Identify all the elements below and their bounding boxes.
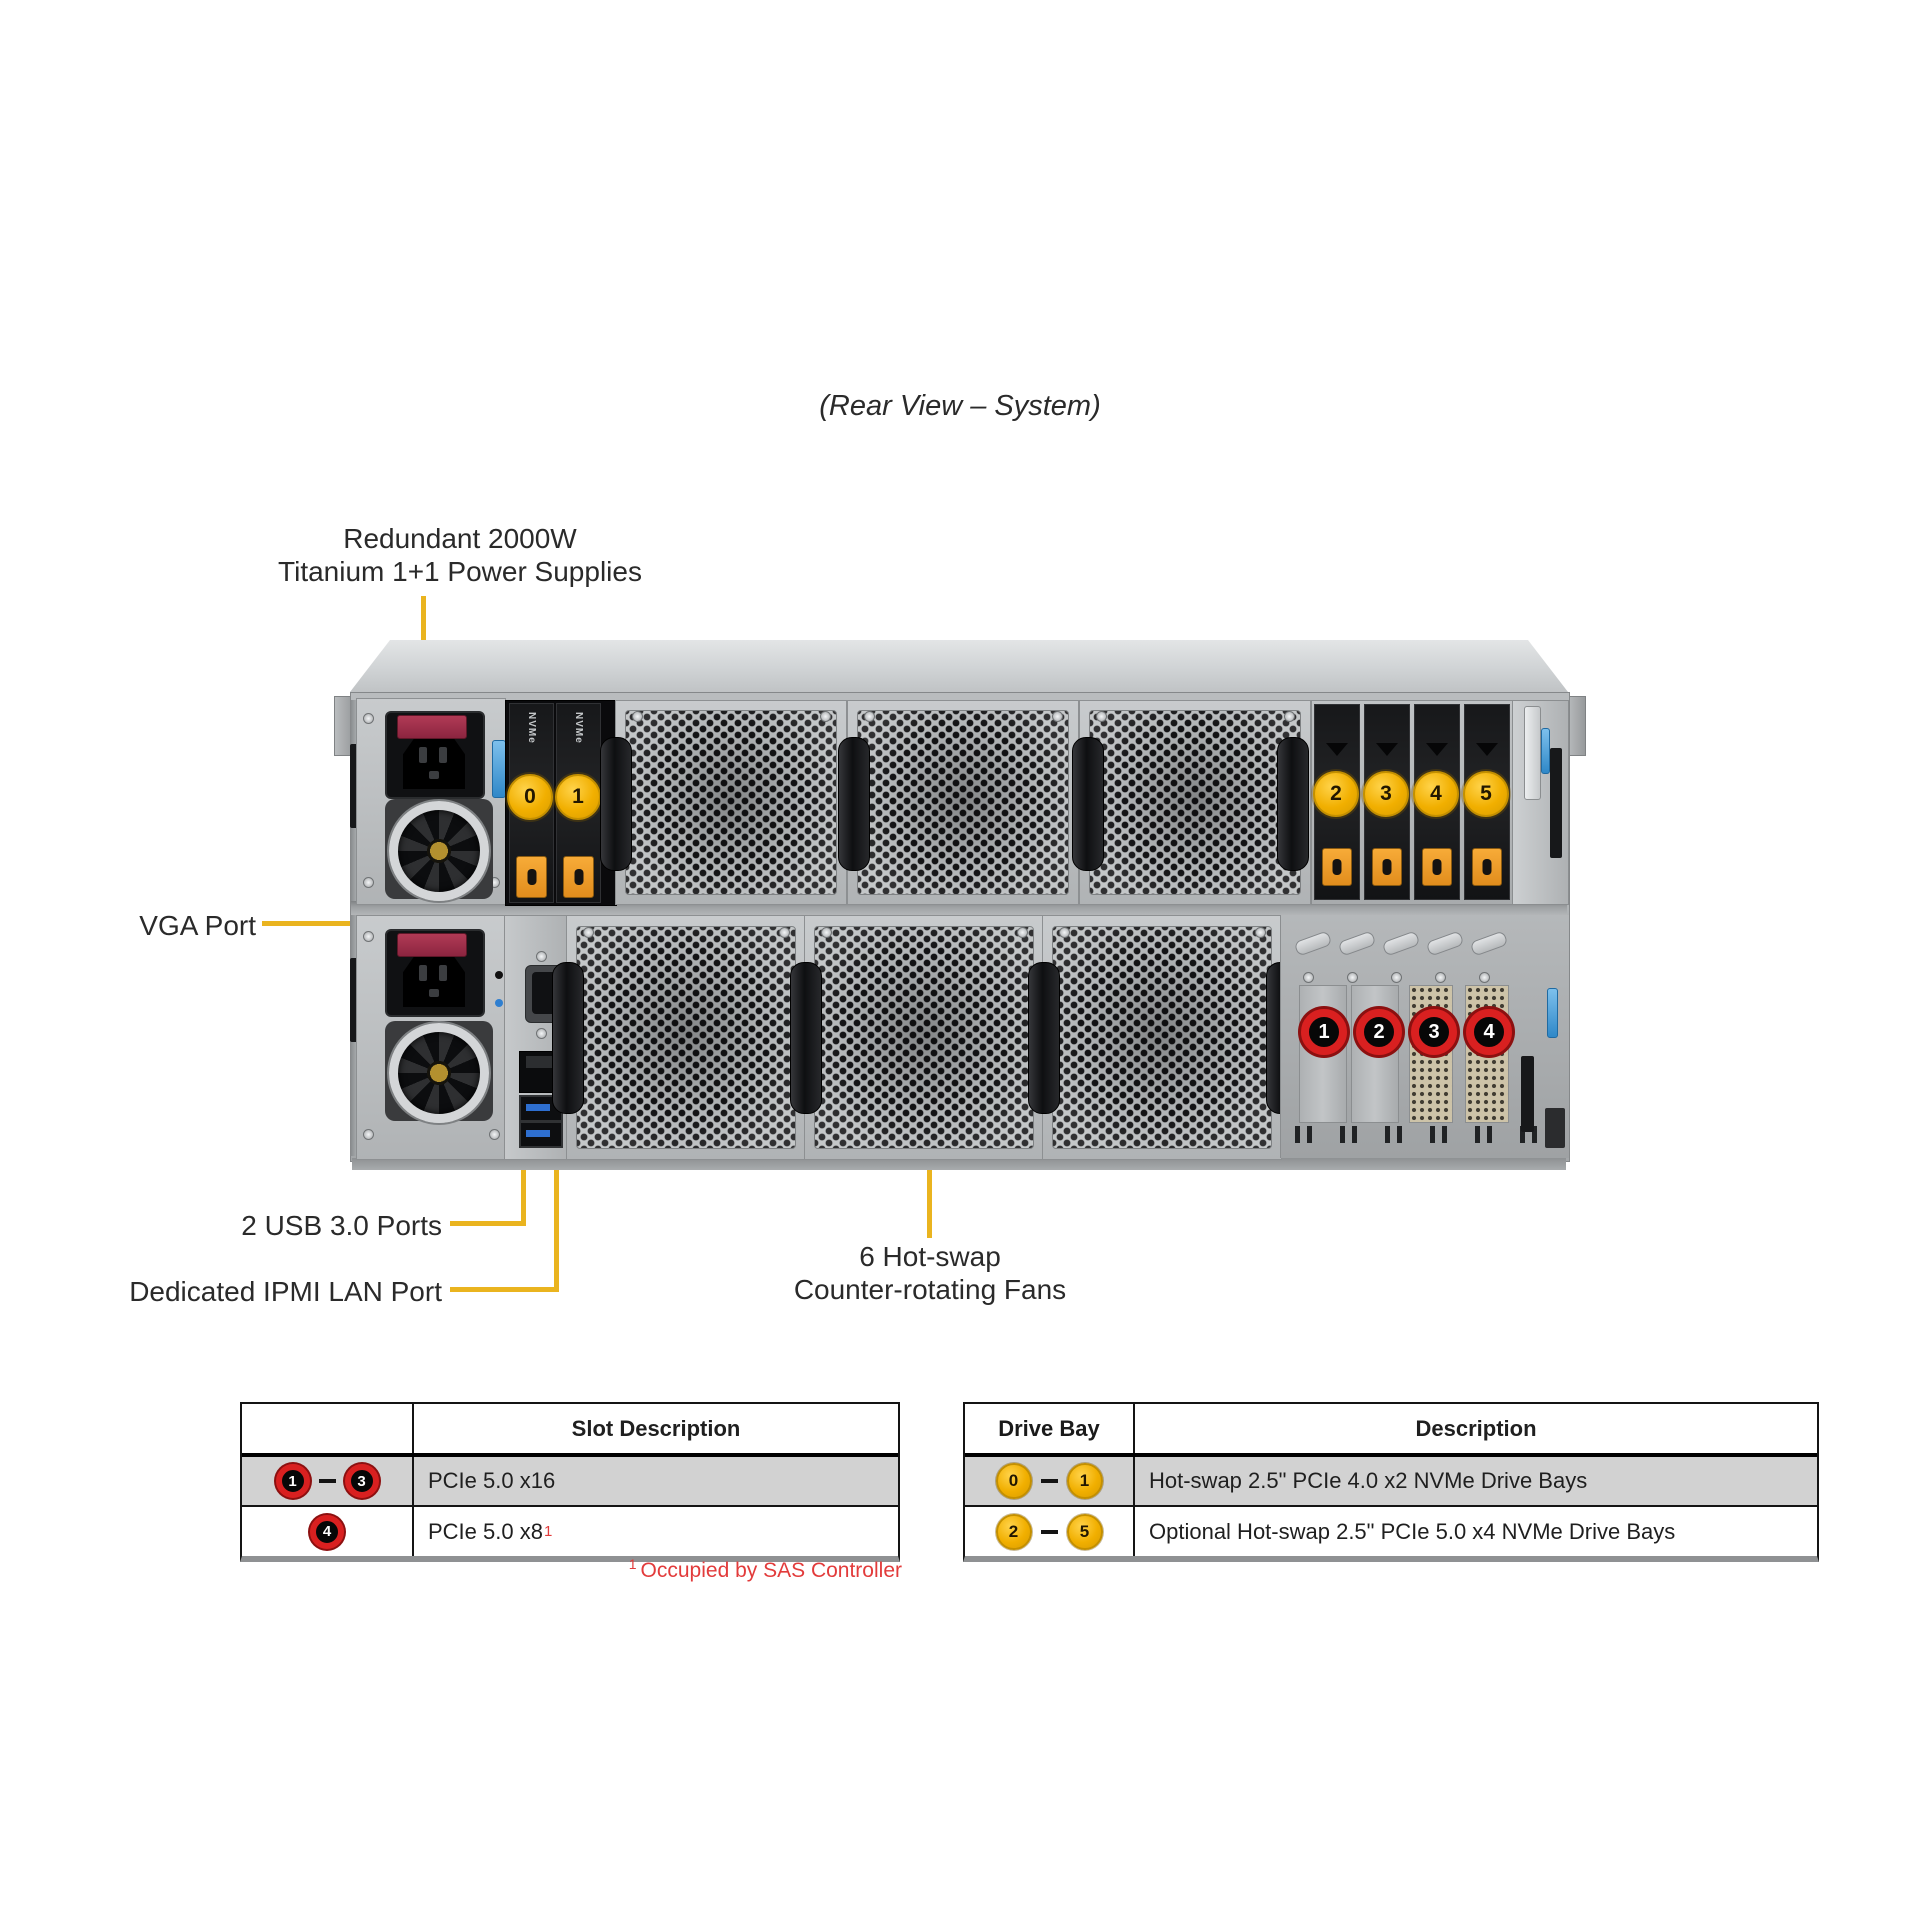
psu-fan-icon [389, 801, 489, 901]
slot-table-row-1: 1 3 PCIe 5.0 x16 [242, 1457, 898, 1505]
drive-bay-badge-3: 3 [1363, 771, 1409, 817]
bay-badge: 2 [996, 1514, 1032, 1550]
footnote-text: Occupied by SAS Controller [641, 1559, 902, 1582]
bay-latch-5 [1472, 848, 1502, 886]
usb-port-2 [519, 1121, 563, 1148]
chevron-icon [1326, 743, 1348, 756]
bay-range-cell: 2 5 [965, 1507, 1135, 1556]
fan-module-6 [1042, 915, 1282, 1160]
slot-retention-clip [1382, 930, 1421, 956]
fan-grille-icon [1089, 710, 1301, 895]
slot-table-header-row: Slot Description [242, 1404, 898, 1457]
slot-badge: 3 [345, 1464, 379, 1498]
ac-socket-icon [403, 951, 465, 1007]
slot-retention-clip [1338, 930, 1377, 956]
ac-prong [439, 965, 447, 981]
psu-retention-clip-bottom [397, 933, 467, 957]
rail-latch [1524, 706, 1541, 800]
slot-desc-text: PCIe 5.0 x8 [428, 1519, 543, 1545]
chevron-icon [1376, 743, 1398, 756]
slot-range-cell: 4 [242, 1507, 414, 1556]
bay-latch-1 [563, 856, 594, 898]
rail-release-tab [1541, 728, 1550, 774]
screw-icon [489, 1129, 500, 1140]
screw-icon [1284, 711, 1295, 722]
slot-retention-clip [1426, 930, 1465, 956]
usb-tongue-icon [526, 1104, 550, 1111]
pcie-slot-badge-4: 4 [1466, 1009, 1512, 1055]
fan-grille-icon [1052, 926, 1272, 1149]
slot-table: Slot Description 1 3 PCIe 5.0 x16 4 PCIe… [240, 1402, 900, 1562]
fan-grille-icon [576, 926, 796, 1149]
rear-view-diagram: (Rear View – System) Redundant 2000W Tit… [0, 0, 1920, 1920]
bay-desc-cell: Hot-swap 2.5" PCIe 4.0 x2 NVMe Drive Bay… [1135, 1457, 1817, 1505]
pcie-slot-badge-1: 1 [1301, 1009, 1347, 1055]
chassis-top-lid [350, 640, 1568, 692]
slot-table-header-empty [242, 1404, 414, 1453]
screw-icon [1435, 972, 1446, 983]
fan-handle [838, 737, 870, 871]
screw-icon [1096, 711, 1107, 722]
psu-callout-line2: Titanium 1+1 Power Supplies [262, 555, 658, 588]
drive-bay-badge-5: 5 [1463, 771, 1509, 817]
pcie-handle [1521, 1056, 1534, 1132]
drive-bay-badge-0: 0 [507, 774, 553, 820]
screw-icon [536, 951, 547, 962]
drive-table: Drive Bay Description 0 1 Hot-swap 2.5" … [963, 1402, 1819, 1562]
pcie-slot-badge-2: 2 [1356, 1009, 1402, 1055]
screw-icon [864, 711, 875, 722]
drive-bay-badge-2: 2 [1313, 771, 1359, 817]
rail-handle [1550, 748, 1562, 858]
fan-module-5 [804, 915, 1044, 1160]
bay-badge: 5 [1067, 1514, 1103, 1550]
table-footnote: 1Occupied by SAS Controller [440, 1556, 902, 1583]
screw-icon [1479, 972, 1490, 983]
slot-badge: 1 [276, 1464, 310, 1498]
psu-release-tab-top [492, 740, 506, 798]
bay-desc-cell: Optional Hot-swap 2.5" PCIe 5.0 x4 NVMe … [1135, 1507, 1817, 1556]
screw-icon [779, 927, 790, 938]
fan-handle [552, 962, 584, 1114]
ac-prong [429, 771, 439, 779]
screw-icon [1059, 927, 1070, 938]
screw-icon [363, 931, 374, 942]
pcie-release-tab [1547, 988, 1558, 1038]
fan-module-4 [566, 915, 806, 1160]
slot-desc-cell: PCIe 5.0 x16 [414, 1457, 898, 1505]
bay-latch-3 [1372, 848, 1402, 886]
psu-led-icon [495, 971, 503, 979]
screw-icon [536, 1028, 547, 1039]
ipmi-callout-label: Dedicated IPMI LAN Port [60, 1275, 442, 1308]
keylock-icon [1383, 859, 1392, 875]
screw-icon [820, 711, 831, 722]
ac-prong [439, 747, 447, 763]
bay-badge: 0 [996, 1463, 1032, 1499]
fans-callout-line2: Counter-rotating Fans [755, 1273, 1105, 1306]
bay-range-cell: 0 1 [965, 1457, 1135, 1505]
fans-callout-label: 6 Hot-swap Counter-rotating Fans [755, 1240, 1105, 1306]
psu-module-bottom [356, 915, 506, 1160]
bay-latch-4 [1422, 848, 1452, 886]
usb-tongue-icon [526, 1130, 550, 1137]
drive-table-header-col1: Drive Bay [965, 1404, 1135, 1453]
psu-led-icon [495, 999, 503, 1007]
fan-handle [1277, 737, 1309, 871]
slot-badge: 4 [310, 1515, 344, 1549]
fan-handle [790, 962, 822, 1114]
slot-table-header: Slot Description [414, 1404, 898, 1453]
slot-retention-clip [1294, 930, 1333, 956]
slot-table-row-2: 4 PCIe 5.0 x81 [242, 1505, 898, 1556]
fan-module-2 [847, 700, 1079, 905]
ac-prong [419, 965, 427, 981]
fan-handle [600, 737, 632, 871]
footnote-mark: 1 [629, 1556, 637, 1572]
bay-badge: 1 [1067, 1463, 1103, 1499]
psu-retention-clip-top [397, 715, 467, 739]
footnote-mark: 1 [544, 1523, 552, 1540]
ac-socket-icon [403, 733, 465, 789]
pcie-slot-badge-3: 3 [1411, 1009, 1457, 1055]
chevron-icon [1476, 743, 1498, 756]
screw-icon [1347, 972, 1358, 983]
screw-icon [363, 1129, 374, 1140]
screw-icon [1303, 972, 1314, 983]
screw-icon [583, 927, 594, 938]
corner-bracket [1545, 1108, 1565, 1148]
screw-icon [632, 711, 643, 722]
range-dash-icon [319, 1479, 336, 1483]
drive-table-header-col2: Description [1135, 1404, 1817, 1453]
nvme-label: NVMe [573, 712, 584, 744]
fans-callout-line1: 6 Hot-swap [755, 1240, 1105, 1273]
psu-fan-plate [385, 1021, 493, 1121]
nvme-label: NVMe [526, 712, 537, 744]
page-title: (Rear View – System) [710, 390, 1210, 423]
slot-retention-clip [1470, 930, 1509, 956]
drive-table-header-row: Drive Bay Description [965, 1404, 1817, 1457]
fan-grille-icon [814, 926, 1034, 1149]
slot-desc-cell: PCIe 5.0 x81 [414, 1507, 898, 1556]
ipmi-callout-line-h [450, 1287, 559, 1292]
ac-prong [419, 747, 427, 763]
screw-icon [1017, 927, 1028, 938]
screw-icon [821, 927, 832, 938]
keylock-icon [1333, 859, 1342, 875]
keylock-icon [574, 869, 583, 885]
screw-icon [1052, 711, 1063, 722]
psu-fan-icon [389, 1023, 489, 1123]
screw-icon [363, 877, 374, 888]
psu-callout-line1: Redundant 2000W [262, 522, 658, 555]
fan-grille-icon [857, 710, 1069, 895]
bay-latch-2 [1322, 848, 1352, 886]
screw-icon [363, 713, 374, 724]
keylock-icon [527, 869, 536, 885]
psu-module-top [356, 698, 506, 905]
keylock-icon [1483, 859, 1492, 875]
vga-callout-label: VGA Port [60, 909, 256, 942]
drive-table-row-1: 0 1 Hot-swap 2.5" PCIe 4.0 x2 NVMe Drive… [965, 1457, 1817, 1505]
range-dash-icon [1041, 1530, 1058, 1534]
usb-callout-label: 2 USB 3.0 Ports [170, 1209, 442, 1242]
drive-bay-badge-4: 4 [1413, 771, 1459, 817]
screw-icon [1391, 972, 1402, 983]
usb-callout-line-h [450, 1221, 526, 1226]
ac-prong [429, 989, 439, 997]
fan-handle [1028, 962, 1060, 1114]
bay-latch-0 [516, 856, 547, 898]
fan-grille-icon [625, 710, 837, 895]
range-dash-icon [1041, 1479, 1058, 1483]
psu-callout-label: Redundant 2000W Titanium 1+1 Power Suppl… [262, 522, 658, 588]
drive-bay-badge-1: 1 [555, 774, 601, 820]
keylock-icon [1433, 859, 1442, 875]
rj45-icon [526, 1056, 554, 1068]
drive-table-row-2: 2 5 Optional Hot-swap 2.5" PCIe 5.0 x4 N… [965, 1505, 1817, 1556]
psu-fan-plate [385, 799, 493, 899]
chevron-icon [1426, 743, 1448, 756]
screw-icon [1255, 927, 1266, 938]
fan-handle [1072, 737, 1104, 871]
slot-range-cell: 1 3 [242, 1457, 414, 1505]
fan-module-1 [615, 700, 847, 905]
